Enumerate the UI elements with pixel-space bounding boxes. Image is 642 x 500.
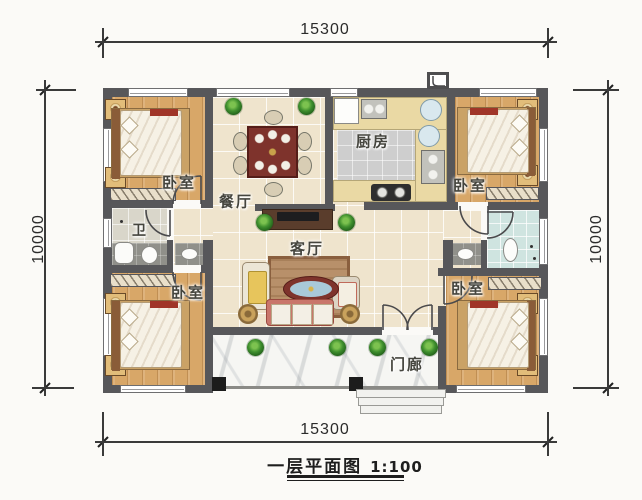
plant: [225, 98, 242, 115]
plant: [298, 98, 315, 115]
side-table: [340, 304, 360, 324]
room-label-bedroom-bottom-left: 卧室: [171, 282, 205, 303]
floor-plan: 卧室 餐厅 厨房 卧室 卫 客厅 卧室 卧室 门廊 15300 15300 10…: [0, 0, 642, 500]
room-label-bathroom: 卫: [132, 220, 146, 240]
bed-bottom-right: [457, 300, 536, 370]
bed-top-left: [111, 108, 190, 178]
title-underline-thin: [287, 480, 404, 481]
window-top-bed2: [479, 88, 537, 97]
dim-ext-top-left: [102, 28, 104, 58]
dining-chair: [297, 156, 312, 175]
dim-text-left: 10000: [30, 211, 48, 267]
porch-column-left: [212, 377, 226, 391]
wall-bed2-bottom-a: [447, 202, 458, 210]
title-scale: 1:100: [370, 458, 423, 476]
wall-bath-right-partition: [481, 240, 487, 268]
window-right-bed2: [539, 128, 548, 182]
wall-bed4-left: [438, 306, 446, 393]
dining-chair: [264, 182, 283, 197]
round-basin: [418, 125, 440, 147]
wall-stub-right: [443, 240, 453, 268]
bed-bottom-left: [111, 300, 190, 370]
room-label-dining: 餐厅: [219, 191, 253, 212]
floor-drain: [530, 245, 533, 248]
window-top-bed1: [128, 88, 188, 97]
vanity-sink-right: [457, 248, 474, 260]
title-text: 一层平面图: [267, 457, 362, 477]
dining-chair: [297, 132, 312, 151]
dining-chair: [233, 132, 248, 151]
dim-line-top: [95, 41, 557, 43]
dim-ext-right-top: [573, 89, 619, 91]
wall-divider-left-upper: [205, 97, 213, 200]
plant: [338, 214, 355, 231]
chimney: [427, 72, 449, 89]
wall-bed1-bottom-a: [103, 200, 173, 208]
dim-ext-bottom-left: [102, 412, 104, 456]
plant: [247, 339, 264, 356]
dim-ext-top-right: [547, 28, 549, 58]
room-label-bedroom-top-right: 卧室: [453, 175, 487, 196]
wall-bed4-top: [438, 268, 548, 276]
toilet-right: [503, 238, 518, 262]
toilet-left: [141, 246, 158, 264]
wall-bed3-top-a: [103, 265, 173, 273]
room-label-bedroom-top-left: 卧室: [162, 172, 196, 193]
plant: [256, 214, 273, 231]
side-table: [238, 304, 258, 324]
vanity-sink-left: [181, 248, 198, 260]
dim-line-right: [607, 80, 609, 396]
window-right-bath: [539, 218, 548, 265]
wardrobe-bottom-left: [110, 274, 176, 287]
dining-chair: [233, 156, 248, 175]
wall-kitchen-bottom: [364, 202, 455, 210]
dining-table: [247, 126, 298, 178]
round-basin: [420, 99, 442, 121]
dim-text-bottom: 15300: [285, 421, 365, 439]
sofa-main: [266, 299, 334, 326]
room-label-kitchen: 厨房: [356, 131, 390, 152]
window-top-dining: [216, 88, 290, 97]
window-right-bed4: [539, 298, 548, 356]
floor-drain: [120, 220, 123, 223]
wall-bath-left-partition: [167, 240, 173, 265]
window-bottom-bed3: [120, 385, 186, 393]
dim-ext-right-bottom: [573, 387, 619, 389]
wall-bed1-bottom-b: [201, 200, 213, 208]
plant: [369, 339, 386, 356]
dim-ext-left-bottom: [32, 387, 74, 389]
fridge: [334, 98, 359, 124]
wardrobe-top-right: [486, 187, 539, 200]
bathtub: [114, 242, 134, 264]
window-left-bath: [103, 218, 112, 248]
bed-top-right: [457, 107, 536, 175]
entry-steps-3: [360, 405, 442, 414]
dining-chair: [264, 110, 283, 125]
drawing-title: 一层平面图1:100: [240, 452, 450, 477]
room-label-porch: 门廊: [390, 354, 424, 375]
window-bottom-bed4: [456, 385, 526, 393]
floor-drain: [533, 257, 536, 260]
plant: [329, 339, 346, 356]
window-top-kitchen: [330, 88, 358, 97]
wardrobe-bottom-right: [488, 277, 542, 290]
wall-bed3-top-b: [201, 265, 213, 273]
room-label-bedroom-bottom-right: 卧室: [451, 278, 485, 299]
dim-ext-bottom-right: [547, 412, 549, 456]
dim-line-bottom: [95, 441, 557, 443]
stove: [371, 184, 411, 201]
dim-text-right: 10000: [588, 211, 606, 267]
wall-living-south-a: [205, 327, 382, 335]
room-label-living: 客厅: [290, 238, 324, 259]
dim-ext-left-top: [36, 89, 76, 91]
tv: [277, 212, 319, 221]
wall-kitchen-left: [325, 97, 333, 202]
wall-living-south-b: [433, 327, 445, 335]
wall-bed2-bottom-b: [488, 202, 548, 210]
kitchen-sink-side: [421, 150, 445, 184]
kitchen-sink-double: [361, 99, 387, 119]
dim-text-top: 15300: [285, 21, 365, 39]
title-underline-thick: [287, 475, 404, 478]
